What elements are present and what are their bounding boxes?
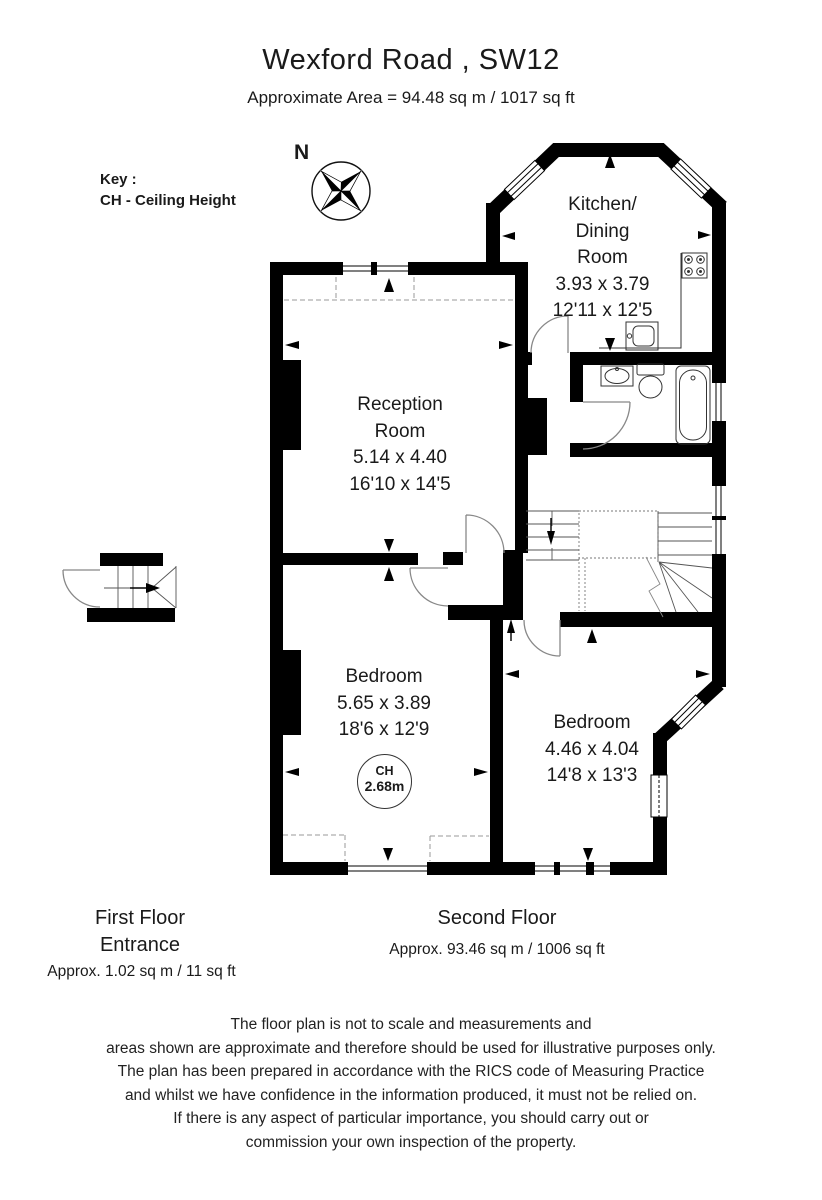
hob-icon [682, 253, 707, 278]
entrance-wall-top [100, 553, 163, 566]
room-name: Kitchen/ Dining Room [520, 192, 685, 272]
room-dims-metric: 5.65 x 3.89 [302, 691, 466, 718]
compass-north-label: N [294, 141, 309, 165]
first-floor-title: First Floor Entrance [45, 905, 235, 959]
first-floor-area: Approx. 1.02 sq m / 11 sq ft [20, 963, 263, 981]
key-block: Key : CH - Ceiling Height [100, 169, 236, 211]
room-dims-metric: 3.93 x 3.79 [520, 272, 685, 299]
stair-up-arrow [507, 619, 515, 633]
door-entrance [63, 570, 100, 607]
room-dims-metric: 4.46 x 4.04 [510, 737, 674, 764]
floorplan-page: Wexford Road , SW12 Approximate Area = 9… [0, 0, 822, 1200]
stairs-entrance [104, 566, 176, 608]
compass-icon [300, 150, 382, 232]
second-floor-area: Approx. 93.46 sq m / 1006 sq ft [337, 941, 657, 959]
stairs-main [526, 511, 712, 617]
entrance-wall-bottom [87, 608, 175, 622]
door-bedroom1 [410, 568, 448, 606]
room-dims-imperial: 14'8 x 13'3 [510, 763, 674, 790]
key-entry: CH - Ceiling Height [100, 190, 236, 211]
chimney-breast-reception [283, 360, 301, 450]
entrance-stair-arrow [146, 583, 160, 593]
sink-icon [626, 322, 658, 350]
room-dims-imperial: 12'11 x 12'5 [520, 298, 685, 325]
door-bedroom2 [524, 620, 560, 656]
disclaimer-text: The floor plan is not to scale and measu… [0, 1013, 822, 1155]
bathroom-fixtures [601, 364, 710, 444]
key-title: Key : [100, 169, 236, 190]
chimney-breast-bedroom1 [283, 650, 301, 735]
room-label-bedroom1: Bedroom 5.65 x 3.89 18'6 x 12'9 [302, 664, 466, 744]
room-dims-imperial: 16'10 x 14'5 [318, 472, 482, 499]
room-label-reception: Reception Room 5.14 x 4.40 16'10 x 14'5 [318, 392, 482, 498]
approximate-area: Approximate Area = 94.48 sq m / 1017 sq … [0, 88, 822, 108]
room-name: Bedroom [510, 710, 674, 737]
door-bathroom [583, 402, 630, 449]
ch-value: 2.68m [358, 778, 411, 794]
room-dims-imperial: 18'6 x 12'9 [302, 717, 466, 744]
second-floor-title: Second Floor [387, 905, 607, 932]
toilet-icon [637, 364, 664, 398]
bathtub-icon [676, 366, 710, 444]
room-name: Bedroom [302, 664, 466, 691]
stair-down-arrow [547, 531, 555, 545]
room-dims-metric: 5.14 x 4.40 [318, 445, 482, 472]
door-reception [466, 515, 504, 553]
page-title: Wexford Road , SW12 [0, 44, 822, 77]
room-name: Reception Room [318, 392, 482, 445]
ch-label: CH [358, 764, 411, 778]
room-label-kitchen: Kitchen/ Dining Room 3.93 x 3.79 12'11 x… [520, 192, 685, 325]
room-label-bedroom2: Bedroom 4.46 x 4.04 14'8 x 13'3 [510, 710, 674, 790]
ceiling-height-badge: CH 2.68m [357, 754, 412, 809]
basin-icon [601, 366, 633, 386]
